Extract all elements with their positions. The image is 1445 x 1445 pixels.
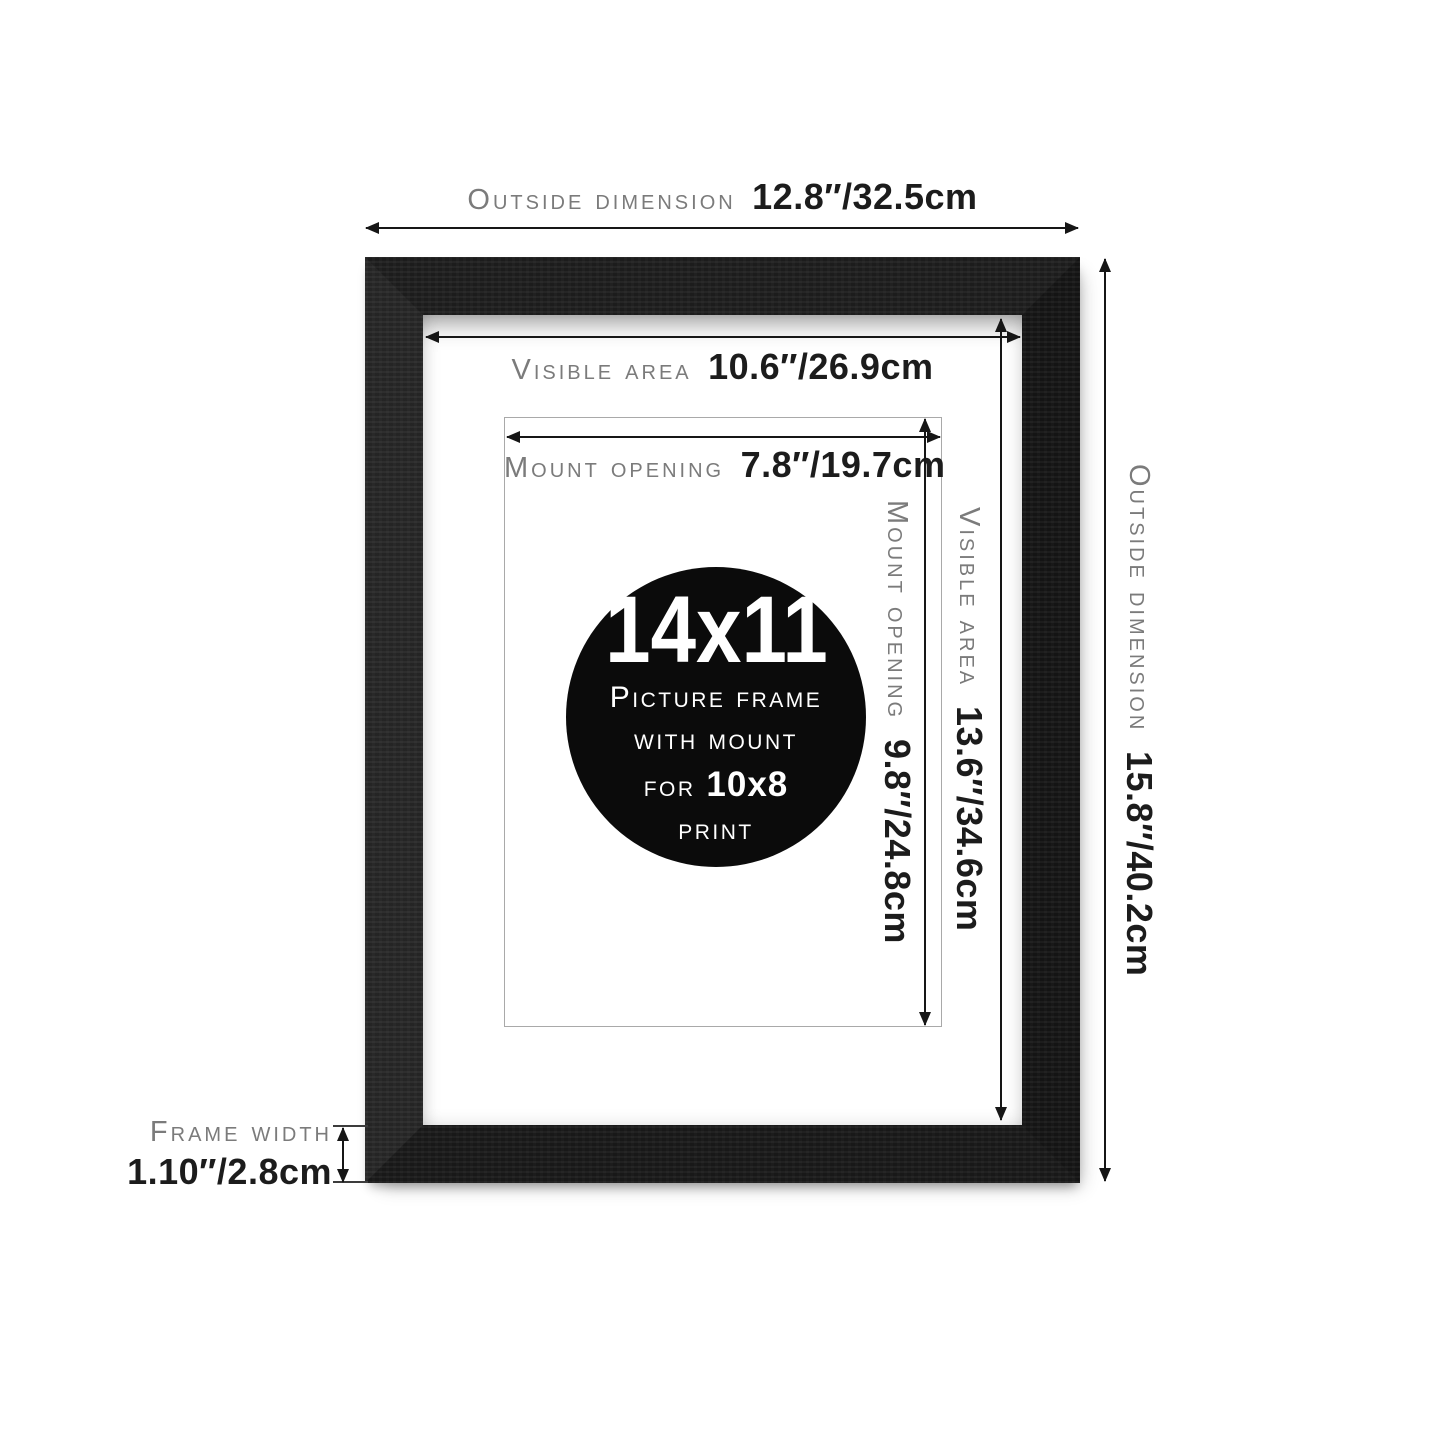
visible-width-callout: Visible area 10.6″/26.9cm [423, 346, 1022, 388]
visible-height-arrow [1000, 319, 1002, 1120]
outside-width-value: 12.8″/32.5cm [752, 176, 977, 217]
frame-width-label: Frame width [40, 1114, 332, 1150]
frame-dimension-diagram: Outside dimension 12.8″/32.5cm Visible a… [0, 0, 1445, 1445]
visible-width-label: Visible area [512, 354, 692, 386]
badge-line-with-mount: with mount [634, 721, 798, 759]
mount-height-arrow [924, 419, 926, 1025]
mount-height-callout: Mount opening 9.8″/24.8cm [876, 417, 918, 1027]
outside-height-arrow [1104, 259, 1106, 1181]
outside-width-label: Outside dimension [467, 184, 735, 216]
visible-height-callout: Visible area 13.6″/34.6cm [948, 315, 990, 1123]
frame-width-arrow [342, 1128, 344, 1182]
badge-line-picture-frame: Picture frame [610, 679, 823, 717]
size-badge: 14x11 Picture frame with mount for 10x8 … [566, 567, 866, 867]
frame-width-value: 1.10″/2.8cm [40, 1150, 332, 1194]
badge-line-print: print [678, 811, 754, 849]
badge-size-text: 14x11 [605, 585, 828, 675]
visible-height-label: Visible area [953, 507, 985, 687]
badge-line-for-print-size: for 10x8 [644, 763, 789, 807]
outside-height-callout: Outside dimension 15.8″/40.2cm [1118, 257, 1160, 1183]
visible-width-value: 10.6″/26.9cm [708, 346, 933, 387]
visible-width-arrow [426, 336, 1020, 338]
visible-height-value: 13.6″/34.6cm [949, 706, 990, 931]
mount-height-label: Mount opening [881, 500, 913, 720]
outside-height-label: Outside dimension [1123, 464, 1155, 732]
badge-print-size: 10x8 [706, 765, 788, 804]
outside-width-callout: Outside dimension 12.8″/32.5cm [365, 176, 1080, 218]
frame-width-callout: Frame width 1.10″/2.8cm [40, 1114, 332, 1194]
outside-width-arrow [366, 227, 1078, 229]
mount-width-label: Mount opening [504, 452, 724, 484]
mount-height-value: 9.8″/24.8cm [877, 739, 918, 944]
outside-height-value: 15.8″/40.2cm [1119, 751, 1160, 976]
badge-for-label: for [644, 770, 696, 803]
